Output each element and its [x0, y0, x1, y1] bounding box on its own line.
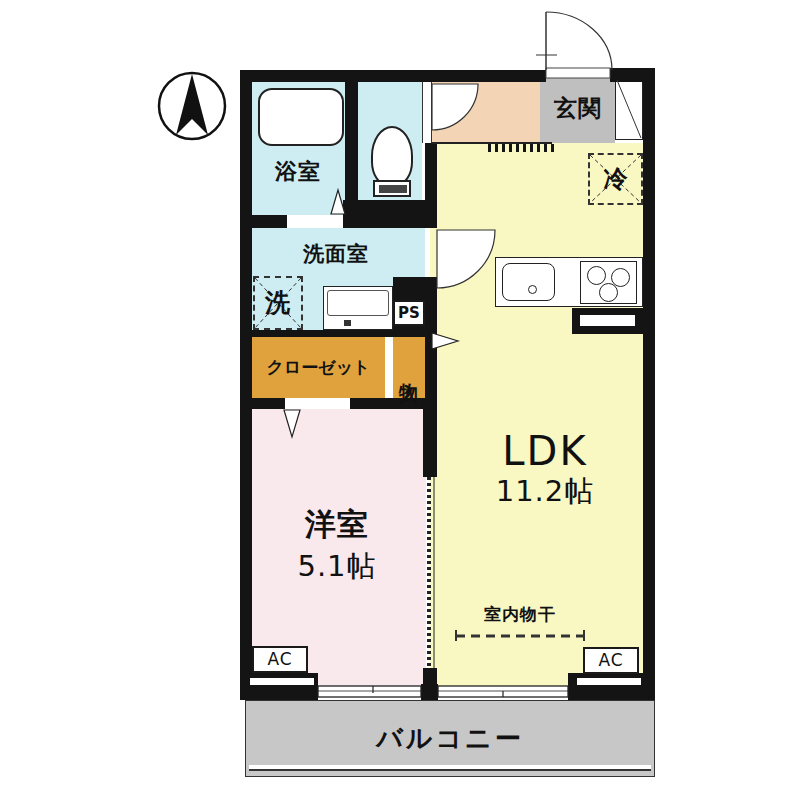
plan-linework — [0, 0, 800, 800]
window-left-icon — [318, 686, 421, 697]
sliding-partition-icon — [429, 477, 434, 668]
washroom-door-icon — [437, 230, 495, 288]
ldk-size-label: 11.2帖 — [460, 475, 630, 509]
toilet-door-icon — [432, 84, 478, 130]
balcony-label: バルコニー — [330, 722, 570, 754]
drying-label: 室内物干 — [450, 604, 590, 624]
ac-left-box: AC — [252, 646, 308, 673]
window-right-icon — [438, 686, 568, 697]
bathroom-door-icon — [331, 190, 345, 214]
bathroom-label: 浴室 — [258, 158, 338, 186]
ac-left-label: AC — [267, 650, 292, 669]
closet-label: クローゼット — [253, 352, 384, 382]
pipe-space-label: PS — [398, 305, 420, 322]
pipe-space-box: PS — [393, 300, 425, 326]
entrance-label: 玄関 — [542, 95, 614, 123]
entrance-door-icon — [536, 12, 612, 78]
storage-door-icon — [432, 333, 458, 349]
north-compass-icon — [159, 73, 225, 139]
washer-label: 洗 — [258, 288, 298, 318]
western-room-label: 洋室 — [256, 506, 418, 542]
washroom-label: 洗面室 — [286, 242, 386, 268]
ac-right-label: AC — [598, 651, 623, 670]
western-room-size-label: 5.1帖 — [256, 550, 418, 584]
floor-plan: PS AC AC 浴室 洗面室 洗 クローゼット 物入 玄関 冷 LDK 11.… — [0, 0, 800, 800]
storage-label: 物入 — [394, 340, 424, 396]
drying-rail-icon — [456, 630, 584, 641]
fridge-label: 冷 — [598, 164, 634, 194]
shoe-cabinet-diagonal — [617, 80, 641, 138]
ldk-label: LDK — [460, 430, 630, 472]
closet-door-icon — [284, 410, 300, 437]
ac-right-box: AC — [583, 647, 639, 674]
